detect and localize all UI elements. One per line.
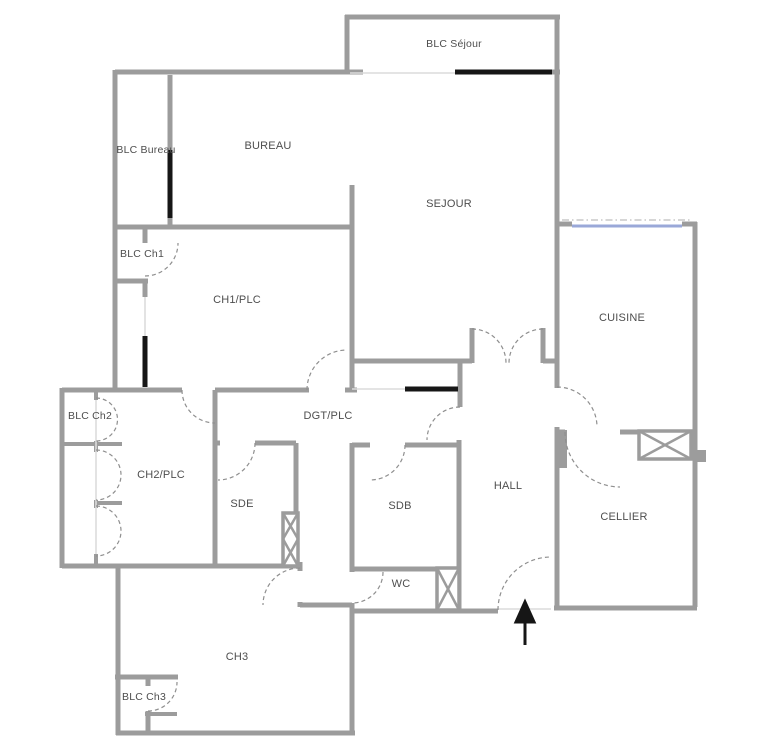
duct-shaft-icon-wc xyxy=(437,568,459,610)
room-label-hall: HALL xyxy=(494,480,522,492)
room-label-ch2-plc: CH2/PLC xyxy=(137,469,185,481)
room-label-blc-ch2: BLC Ch2 xyxy=(68,410,112,422)
door-arc-wc xyxy=(352,572,383,603)
room-label-wc: WC xyxy=(392,578,411,590)
room-label-bureau: BUREAU xyxy=(244,140,291,152)
floor-plan: BLC Séjour BLC Bureau BUREAU SEJOUR BLC … xyxy=(0,0,778,750)
wall-notch xyxy=(693,450,706,462)
door-arc-sejour-right xyxy=(509,329,543,363)
room-label-ch3: CH3 xyxy=(226,651,249,663)
room-label-sejour: SEJOUR xyxy=(426,198,472,210)
room-label-cellier: CELLIER xyxy=(600,511,647,523)
walls xyxy=(62,15,706,735)
room-label-blc-bureau: BLC Bureau xyxy=(116,144,175,156)
room-label-sde: SDE xyxy=(230,498,253,510)
door-arc-cellier xyxy=(565,432,620,487)
door-arc-sde xyxy=(218,443,255,480)
room-label-sdb: SDB xyxy=(388,500,411,512)
room-label-dgt-plc: DGT/PLC xyxy=(303,410,352,422)
room-labels: BLC Séjour BLC Bureau BUREAU SEJOUR BLC … xyxy=(68,38,648,703)
door-arc-ch1 xyxy=(307,350,347,390)
room-label-ch1-plc: CH1/PLC xyxy=(213,294,261,306)
door-arc-ch3 xyxy=(263,568,300,605)
room-label-blc-ch1: BLC Ch1 xyxy=(120,248,164,260)
room-label-cuisine: CUISINE xyxy=(599,312,645,324)
door-arc-sdb xyxy=(370,445,405,480)
room-label-blc-sejour: BLC Séjour xyxy=(426,38,482,50)
door-arc-cuisine xyxy=(557,387,597,427)
door-arc-hall-dgt xyxy=(427,407,460,440)
door-arc-sejour-left xyxy=(472,329,506,363)
duct-shaft-icon-cuisine xyxy=(639,431,691,459)
door-arc-ch2 xyxy=(182,390,215,423)
duct-shaft-icon-sde xyxy=(283,513,298,566)
door-arc-blc-ch2-c xyxy=(96,506,121,556)
door-arc-blc-ch2-b xyxy=(96,450,121,500)
floor-plan-page: BLC Séjour BLC Bureau BUREAU SEJOUR BLC … xyxy=(0,0,778,750)
windows xyxy=(145,72,690,389)
room-label-blc-ch3: BLC Ch3 xyxy=(122,691,166,703)
